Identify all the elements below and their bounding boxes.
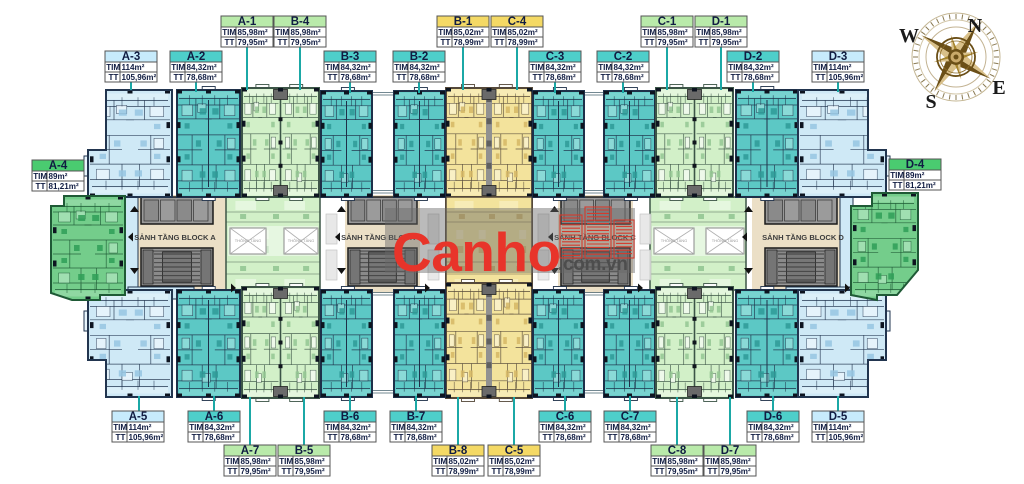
svg-text:A-5: A-5	[129, 411, 148, 423]
svg-text:79,95m²: 79,95m²	[241, 467, 271, 476]
svg-text:D-5: D-5	[829, 411, 848, 423]
svg-text:A-3: A-3	[122, 51, 141, 63]
svg-text:79,95m²: 79,95m²	[238, 38, 268, 47]
svg-text:105,96m²: 105,96m²	[122, 73, 157, 82]
svg-text:TIM: TIM	[391, 423, 405, 432]
svg-text:B-8: B-8	[449, 445, 468, 457]
svg-text:.com.vn: .com.vn	[558, 254, 628, 275]
svg-text:85,02m²: 85,02m²	[505, 457, 535, 466]
svg-text:A-4: A-4	[49, 160, 68, 172]
svg-text:84,32m²: 84,32m²	[205, 423, 235, 432]
svg-text:A-7: A-7	[241, 445, 260, 457]
svg-text:78,68m²: 78,68m²	[341, 73, 371, 82]
svg-text:TT: TT	[751, 433, 761, 442]
svg-text:TT: TT	[282, 467, 292, 476]
svg-text:105,96m²: 105,96m²	[829, 73, 864, 82]
svg-text:114m²: 114m²	[829, 423, 852, 432]
svg-text:A-1: A-1	[238, 16, 257, 28]
svg-text:C-8: C-8	[668, 445, 687, 457]
svg-text:TIM: TIM	[171, 63, 185, 72]
svg-text:105,96m²: 105,96m²	[129, 433, 164, 442]
svg-text:78,68m²: 78,68m²	[621, 433, 651, 442]
svg-text:D-4: D-4	[906, 159, 925, 171]
svg-text:TIM: TIM	[438, 28, 452, 37]
svg-text:89m²: 89m²	[49, 172, 68, 181]
svg-text:79,95m²: 79,95m²	[721, 467, 751, 476]
svg-text:TT: TT	[436, 467, 446, 476]
svg-text:N: N	[968, 15, 983, 37]
svg-text:SẢNH TẦNG BLOCK D: SẢNH TẦNG BLOCK D	[762, 232, 844, 242]
svg-text:TT: TT	[278, 38, 288, 47]
svg-text:78,68m²: 78,68m²	[407, 433, 437, 442]
svg-text:D-6: D-6	[764, 411, 783, 423]
svg-text:114m²: 114m²	[129, 423, 152, 432]
svg-text:TIM: TIM	[813, 63, 827, 72]
svg-text:85,02m²: 85,02m²	[454, 28, 484, 37]
svg-text:C-2: C-2	[614, 51, 633, 63]
svg-text:TIM: TIM	[275, 28, 289, 37]
svg-text:TIM: TIM	[189, 423, 203, 432]
svg-text:79,95m²: 79,95m²	[291, 38, 321, 47]
svg-text:C-5: C-5	[505, 445, 524, 457]
svg-text:SẢNH TẦNG BLOCK A: SẢNH TẦNG BLOCK A	[134, 232, 216, 242]
svg-text:D-1: D-1	[712, 16, 731, 28]
svg-text:TIM: TIM	[598, 63, 612, 72]
svg-text:85,98m²: 85,98m²	[238, 28, 268, 37]
svg-text:B-1: B-1	[454, 16, 473, 28]
svg-text:TIM: TIM	[728, 63, 742, 72]
svg-text:TIM: TIM	[813, 423, 827, 432]
svg-text:TT: TT	[543, 433, 553, 442]
svg-text:C-1: C-1	[658, 16, 677, 28]
svg-text:79,95m²: 79,95m²	[658, 38, 688, 47]
svg-text:TIM: TIM	[222, 28, 236, 37]
svg-text:A-2: A-2	[187, 51, 206, 63]
svg-text:TIM: TIM	[279, 457, 293, 466]
svg-text:84,32m²: 84,32m²	[187, 63, 217, 72]
svg-text:TT: TT	[645, 38, 655, 47]
svg-text:D-2: D-2	[744, 51, 763, 63]
svg-text:85,98m²: 85,98m²	[712, 28, 742, 37]
svg-text:114m²: 114m²	[122, 63, 145, 72]
svg-text:D-7: D-7	[721, 445, 740, 457]
svg-text:TT: TT	[192, 433, 202, 442]
svg-text:B-7: B-7	[407, 411, 426, 423]
svg-text:TT: TT	[109, 73, 119, 82]
svg-text:85,98m²: 85,98m²	[295, 457, 325, 466]
svg-text:TT: TT	[655, 467, 665, 476]
svg-text:TT: TT	[816, 433, 826, 442]
svg-text:85,98m²: 85,98m²	[721, 457, 751, 466]
svg-text:THÔNG TẦNG: THÔNG TẦNG	[661, 238, 688, 243]
svg-text:TIM: TIM	[433, 457, 447, 466]
svg-text:TT: TT	[225, 38, 235, 47]
svg-text:TT: TT	[816, 73, 826, 82]
svg-text:THÔNG TẦNG: THÔNG TẦNG	[712, 238, 739, 243]
svg-text:A-6: A-6	[205, 411, 224, 423]
svg-text:81,21m²: 81,21m²	[49, 182, 79, 191]
svg-text:TIM: TIM	[705, 457, 719, 466]
svg-text:TT: TT	[116, 433, 126, 442]
svg-text:85,98m²: 85,98m²	[658, 28, 688, 37]
svg-text:81,21m²: 81,21m²	[906, 181, 936, 190]
svg-text:TIM: TIM	[225, 457, 239, 466]
svg-text:78,68m²: 78,68m²	[614, 73, 644, 82]
svg-text:TIM: TIM	[890, 171, 904, 180]
svg-text:TT: TT	[394, 433, 404, 442]
svg-text:C-3: C-3	[546, 51, 565, 63]
svg-text:78,99m²: 78,99m²	[449, 467, 479, 476]
svg-text:78,68m²: 78,68m²	[556, 433, 586, 442]
svg-text:B-4: B-4	[291, 16, 310, 28]
svg-text:TIM: TIM	[394, 63, 408, 72]
svg-text:B-3: B-3	[341, 51, 360, 63]
svg-text:C-7: C-7	[621, 411, 640, 423]
svg-text:79,95m²: 79,95m²	[295, 467, 325, 476]
svg-text:B-6: B-6	[341, 411, 360, 423]
svg-text:78,68m²: 78,68m²	[410, 73, 440, 82]
svg-text:B-2: B-2	[410, 51, 429, 63]
svg-text:TT: TT	[36, 182, 46, 191]
svg-text:TIM: TIM	[530, 63, 544, 72]
svg-text:TT: TT	[608, 433, 618, 442]
svg-text:TIM: TIM	[652, 457, 666, 466]
svg-text:114m²: 114m²	[829, 63, 852, 72]
svg-text:Canho: Canho	[392, 221, 561, 283]
svg-text:84,32m²: 84,32m²	[341, 423, 371, 432]
svg-text:TIM: TIM	[696, 28, 710, 37]
svg-text:78,68m²: 78,68m²	[187, 73, 217, 82]
svg-text:85,02m²: 85,02m²	[508, 28, 538, 37]
svg-text:TIM: TIM	[325, 63, 339, 72]
svg-text:TIM: TIM	[540, 423, 554, 432]
svg-text:84,32m²: 84,32m²	[341, 63, 371, 72]
svg-text:85,98m²: 85,98m²	[291, 28, 321, 37]
svg-text:TT: TT	[533, 73, 543, 82]
svg-text:85,98m²: 85,98m²	[241, 457, 271, 466]
svg-text:89m²: 89m²	[906, 171, 925, 180]
svg-text:78,68m²: 78,68m²	[341, 433, 371, 442]
svg-text:TT: TT	[441, 38, 451, 47]
svg-text:TIM: TIM	[492, 28, 506, 37]
svg-text:TIM: TIM	[489, 457, 503, 466]
svg-text:D-3: D-3	[829, 51, 848, 63]
svg-text:84,32m²: 84,32m²	[546, 63, 576, 72]
svg-text:TIM: TIM	[748, 423, 762, 432]
svg-text:C-6: C-6	[556, 411, 575, 423]
svg-text:TIM: TIM	[642, 28, 656, 37]
svg-text:TIM: TIM	[106, 63, 120, 72]
svg-text:84,32m²: 84,32m²	[614, 63, 644, 72]
svg-text:E: E	[992, 77, 1005, 99]
svg-text:84,32m²: 84,32m²	[764, 423, 794, 432]
svg-text:TT: TT	[708, 467, 718, 476]
svg-text:TT: TT	[731, 73, 741, 82]
svg-text:TIM: TIM	[33, 172, 47, 181]
svg-text:B-5: B-5	[295, 445, 314, 457]
svg-text:84,32m²: 84,32m²	[410, 63, 440, 72]
svg-text:S: S	[925, 91, 936, 113]
svg-text:THÔNG TẦNG: THÔNG TẦNG	[288, 238, 315, 243]
svg-text:78,68m²: 78,68m²	[205, 433, 235, 442]
svg-text:TIM: TIM	[605, 423, 619, 432]
svg-text:TT: TT	[328, 433, 338, 442]
svg-text:TT: TT	[492, 467, 502, 476]
svg-text:TIM: TIM	[325, 423, 339, 432]
svg-text:TT: TT	[495, 38, 505, 47]
svg-text:TT: TT	[601, 73, 611, 82]
svg-text:79,95m²: 79,95m²	[712, 38, 742, 47]
svg-text:TT: TT	[893, 181, 903, 190]
svg-text:78,68m²: 78,68m²	[744, 73, 774, 82]
svg-text:TT: TT	[174, 73, 184, 82]
svg-text:78,99m²: 78,99m²	[508, 38, 538, 47]
svg-text:THÔNG TẦNG: THÔNG TẦNG	[235, 238, 262, 243]
svg-text:TT: TT	[328, 73, 338, 82]
svg-text:TT: TT	[397, 73, 407, 82]
svg-text:84,32m²: 84,32m²	[744, 63, 774, 72]
svg-text:78,68m²: 78,68m²	[546, 73, 576, 82]
svg-text:78,99m²: 78,99m²	[454, 38, 484, 47]
svg-text:84,32m²: 84,32m²	[407, 423, 437, 432]
svg-text:85,02m²: 85,02m²	[449, 457, 479, 466]
svg-text:TT: TT	[699, 38, 709, 47]
svg-text:TT: TT	[228, 467, 238, 476]
svg-text:W: W	[899, 25, 919, 47]
svg-text:TIM: TIM	[113, 423, 127, 432]
svg-text:85,98m²: 85,98m²	[668, 457, 698, 466]
svg-text:79,95m²: 79,95m²	[668, 467, 698, 476]
svg-text:84,32m²: 84,32m²	[621, 423, 651, 432]
svg-text:C-4: C-4	[508, 16, 527, 28]
svg-text:105,96m²: 105,96m²	[829, 433, 864, 442]
svg-text:78,68m²: 78,68m²	[764, 433, 794, 442]
svg-text:78,99m²: 78,99m²	[505, 467, 535, 476]
svg-text:84,32m²: 84,32m²	[556, 423, 586, 432]
